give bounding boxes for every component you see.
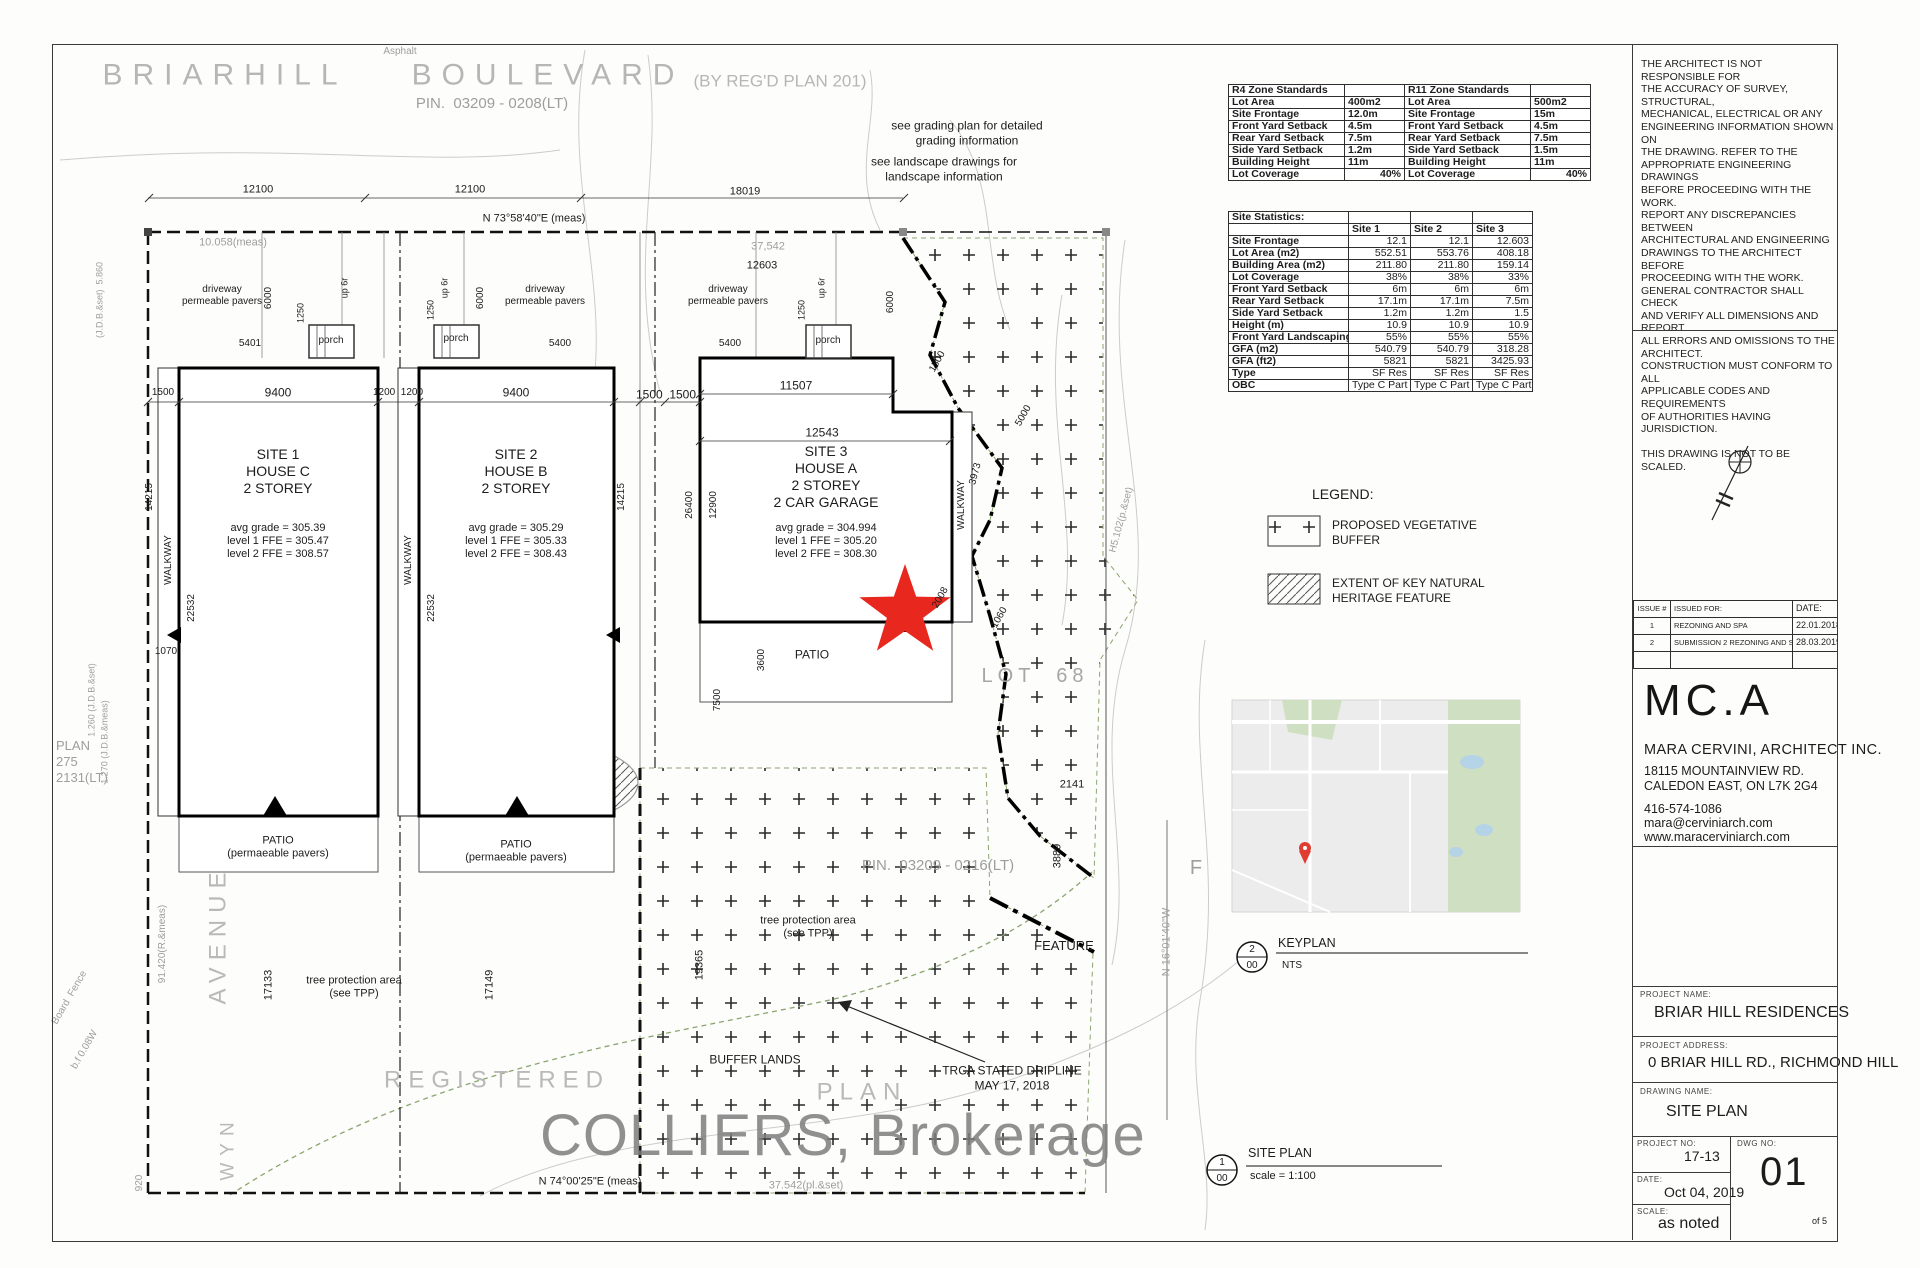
table-cell: SF Res [1411,368,1473,380]
dim-label: 37,542 [751,240,785,253]
bearing-label: N 73°58'40"E (meas) [483,212,586,225]
dim-label: 14215 [144,483,156,511]
lot-label: LOT 68 [982,664,1089,688]
walkway-label: WALKWAY [956,480,968,530]
bearing-label: N 74°00'25"E (meas) [539,1175,642,1188]
tree-protection-note: tree protection area (see TPP) [306,975,401,1002]
drawing-name: SITE PLAN [1666,1103,1748,1121]
column-divider [1632,44,1633,1240]
table-cell: Building Area (m2) [1229,260,1349,272]
table-cell: 33% [1473,272,1533,284]
dim-label: 26400 [684,491,696,519]
table-cell: 1.5m [1531,145,1591,157]
table-cell: R11 Zone Standards [1405,85,1531,97]
table-cell: 6m [1411,284,1473,296]
dim-label: 10.058(meas) [199,236,267,249]
table-cell: Site Frontage [1405,109,1531,121]
table-cell: 6m [1349,284,1411,296]
table-cell: 10.9 [1473,320,1533,332]
table-cell: 3425.93 [1473,356,1533,368]
table-cell: GFA (ft2) [1229,356,1349,368]
divider [1632,330,1838,331]
table-cell: 40% [1345,169,1405,181]
house-1-outline [179,368,378,816]
dim-label: 7500 [712,689,724,711]
legend-heritage-swatch [1268,574,1320,604]
firm-address-line2: CALEDON EAST, ON L7K 2G4 [1644,779,1818,793]
siteplan-detail-number: 1 [1219,1157,1225,1169]
dim-label: 3600 [756,649,768,671]
table-cell [1345,85,1405,97]
trca-note: TRCA STATED DRIPLINE MAY 17, 2018 [942,1063,1082,1092]
table-cell: Building Height [1405,157,1531,169]
driveway-label: driveway permeable pavers [182,284,262,308]
drawing-name-label: DRAWING NAME: [1640,1087,1712,1096]
divider [1632,1136,1838,1137]
issue-header-num: ISSUE # [1634,601,1671,618]
table-cell: 5821 [1411,356,1473,368]
table-cell: 17.1m [1349,296,1411,308]
table-cell: SUBMISSION 2 REZONING AND SPA [1671,635,1793,652]
table-cell: Lot Coverage [1229,272,1349,284]
table-cell: Type C Part 9 [1411,380,1473,392]
site-2-label: SITE 2 HOUSE B 2 STOREY [482,446,551,497]
table-cell: REZONING AND SPA [1671,618,1793,635]
street-name: BOULEVARD [412,58,685,95]
table-cell: 15m [1531,109,1591,121]
driveway-label: driveway permeable pavers [505,284,585,308]
legend-buffer-swatch [1268,516,1320,546]
dim-label: 9400 [503,386,530,401]
porch-label: porch [443,333,468,345]
dim-label: 1250 [426,300,437,320]
table-cell: GFA (m2) [1229,344,1349,356]
table-cell: 10.9 [1349,320,1411,332]
project-address: 0 BRIAR HILL RD., RICHMOND HILL [1648,1054,1898,1071]
table-cell: Rear Yard Setback [1405,133,1531,145]
legend-title: LEGEND: [1312,486,1373,503]
table-cell: Side Yard Setback [1229,308,1349,320]
walkway-label: WALKWAY [163,535,175,585]
table-cell: 408.18 [1473,248,1533,260]
table-cell: Lot Area (m2) [1229,248,1349,260]
table-cell: Site 1 [1349,224,1411,236]
divider [1730,1136,1731,1240]
dim-label: 22532 [426,594,438,622]
project-no-label: PROJECT NO: [1637,1139,1696,1148]
site-1-grades: avg grade = 305.39 level 1 FFE = 305.47 … [227,522,329,561]
disclaimer-text: THE ARCHITECT IS NOT RESPONSIBLE FOR THE… [1641,58,1835,474]
dim-label: 37.542(pl.&set) [769,1179,844,1192]
table-cell: 1.2m [1411,308,1473,320]
table-cell [1411,212,1473,224]
site-statistics-table: Site Statistics:Site 1Site 2Site 3Site F… [1228,211,1532,392]
grading-note: see grading plan for detailed grading in… [891,118,1042,147]
keyplan-label: KEYPLAN [1278,936,1336,951]
table-cell [1793,652,1838,669]
table-cell: 1.2m [1345,145,1405,157]
site-3-grades: avg grade = 304.994 level 1 FFE = 305.20… [775,522,877,561]
table-cell: 1 [1634,618,1671,635]
table-cell: 55% [1473,332,1533,344]
table-cell: SF Res [1349,368,1411,380]
table-cell: Site Frontage [1229,109,1345,121]
porch-label: porch [318,335,343,347]
table-cell: 540.79 [1411,344,1473,356]
landscape-note: see landscape drawings for landscape inf… [871,154,1017,183]
dim-label: 1500 1500 [636,388,696,403]
patio-label: PATIO (permaeable pavers) [465,839,567,866]
site-2-grades: avg grade = 305.29 level 1 FFE = 305.33 … [465,522,567,561]
porches [309,325,851,358]
site-3-label: SITE 3 HOUSE A 2 STOREY 2 CAR GARAGE [773,443,878,511]
survey-note: F [1190,856,1202,880]
divider [1632,1172,1730,1173]
table-cell: 22.01.2018 [1793,618,1838,635]
keyplan-sheet-number: 00 [1246,960,1257,972]
divider [1632,986,1838,987]
table-cell: Rear Yard Setback [1229,296,1349,308]
dim-label: 91.420(R.&meas) [157,905,169,983]
survey-note: (J.D.B.&set) 5.860 [95,262,106,338]
table-cell: SF Res [1473,368,1533,380]
dim-label: 12100 [243,183,274,196]
dim-label: 12900 [708,491,720,519]
table-cell [1671,652,1793,669]
firm-name: MARA CERVINI, ARCHITECT INC. [1644,742,1882,758]
table-cell: Type C Part 9 [1349,380,1411,392]
table-cell: 1.2m [1349,308,1411,320]
stair-label: up 6r [817,278,828,299]
table-cell: Site 3 [1473,224,1533,236]
street-plan-ref: (BY REG'D PLAN 201) [694,72,867,93]
dim-label: 1070 [155,646,177,658]
table-cell: Type [1229,368,1349,380]
table-cell: 400m2 [1345,97,1405,109]
table-cell: 12.1 [1349,236,1411,248]
street-name: BRIARHILL [102,58,347,95]
legend-item-buffer: PROPOSED VEGETATIVE BUFFER [1332,518,1477,548]
table-cell: 4.5m [1345,121,1405,133]
r11-zone-table: R11 Zone StandardsLot Area500m2Site Fron… [1404,84,1590,181]
table-cell: 5821 [1349,356,1411,368]
keyplan-scale: NTS [1282,960,1302,972]
table-cell: Front Yard Landscaping (%) [1229,332,1349,344]
table-cell: Site Frontage [1229,236,1349,248]
dim-label: 6000 [263,287,275,309]
table-cell: OBC [1229,380,1349,392]
table-cell [1349,212,1411,224]
table-cell: Type C Part 9 [1473,380,1533,392]
issue-header-for: ISSUED FOR: [1671,601,1793,618]
table-cell: 318.28 [1473,344,1533,356]
date-label: DATE: [1637,1175,1662,1184]
table-cell: Side Yard Setback [1405,145,1531,157]
table-cell: Site Statistics: [1229,212,1349,224]
table-cell: 7.5m [1345,133,1405,145]
dim-label: 12100 [455,183,486,196]
stair-label: up 6r [440,278,451,299]
issue-header-date: DATE: [1793,601,1838,618]
r4-zone-table: R4 Zone StandardsLot Area400m2Site Front… [1228,84,1404,181]
dim-label: 1250 [296,303,307,323]
table-cell: 7.5m [1531,133,1591,145]
dim-label: 5400 [549,338,571,350]
porch-label: porch [815,335,840,347]
table-cell: 55% [1349,332,1411,344]
firm-website: www.maracerviniarch.com [1644,830,1790,844]
table-cell: 12.0m [1345,109,1405,121]
table-cell: 17.1m [1411,296,1473,308]
brokerage-watermark: COLLIERS, Brokerage [540,1102,1146,1169]
table-cell: 211.80 [1349,260,1411,272]
table-cell: 553.76 [1411,248,1473,260]
table-cell: 55% [1411,332,1473,344]
dim-label: 920 [134,1175,146,1192]
siteplan-sheet-number: 00 [1216,1173,1227,1185]
dim-label: 5400 [719,338,741,350]
issue-table: ISSUE # ISSUED FOR: DATE: 1REZONING AND … [1633,600,1837,669]
dim-label: 17149 [483,970,496,1001]
dim-label: 19365 [693,950,706,981]
table-cell: 10.9 [1411,320,1473,332]
keyplan-detail-number: 2 [1249,944,1255,956]
table-cell: 38% [1349,272,1411,284]
legend-item-heritage: EXTENT OF KEY NATURAL HERITAGE FEATURE [1332,576,1485,606]
table-cell: 4.5m [1531,121,1591,133]
bearing-label: N 16°01'40"W [1160,908,1173,977]
table-cell: 11m [1345,157,1405,169]
table-cell: Lot Coverage [1405,169,1531,181]
firm-phone: 416-574-1086 [1644,802,1722,816]
table-cell: 500m2 [1531,97,1591,109]
patio-label: PATIO [795,648,829,663]
dwg-no: 01 [1760,1150,1809,1195]
asphalt-label: Asphalt [383,46,416,58]
dim-label: 3889 [1051,844,1064,868]
dim-label: 14215 [616,483,628,511]
table-cell: 1.5 [1473,308,1533,320]
table-cell: Lot Area [1229,97,1345,109]
site-plan-sheet: Asphalt BRIARHILL BOULEVARD (BY REG'D PL… [0,0,1920,1268]
table-cell: 11m [1531,157,1591,169]
pin-label: PIN. 03209 - 0208(LT) [416,95,568,113]
table-cell: Site 2 [1411,224,1473,236]
table-cell: 28.03.2019 [1793,635,1838,652]
table-cell: Lot Coverage [1229,169,1345,181]
dwg-no-label: DWG NO: [1737,1139,1777,1148]
table-cell: 552.51 [1349,248,1411,260]
keyplan-map [1232,700,1520,912]
project-name: BRIAR HILL RESIDENCES [1654,1004,1849,1022]
table-cell: R4 Zone Standards [1229,85,1345,97]
tree-protection-note: tree protection area (see TPP) [760,915,855,942]
firm-logo: MC.A [1644,676,1774,726]
table-cell: 2 [1634,635,1671,652]
dim-label: 17133 [262,970,275,1001]
stair-label: up 6r [340,278,351,299]
dim-label: 1250 [797,300,808,320]
survey-note: 1.270 (J.D.B.&meas) [100,700,111,784]
house-2-outline [419,368,614,816]
table-cell: Front Yard Setback [1229,121,1345,133]
table-cell: Front Yard Setback [1405,121,1531,133]
site-1-label: SITE 1 HOUSE C 2 STOREY [244,446,313,497]
dim-label: 5401 [239,338,261,350]
dim-label: 11507 [780,379,812,394]
survey-note: 1.260 (J.D.B.&set) [87,663,98,737]
table-cell: Rear Yard Setback [1229,133,1345,145]
dim-label: 12543 [805,426,838,441]
divider [1632,1204,1730,1205]
table-cell: 7.5m [1473,296,1533,308]
table-cell: 38% [1411,272,1473,284]
table-cell: 211.80 [1411,260,1473,272]
divider [1632,1036,1838,1037]
buffer-lands-label: BUFFER LANDS [709,1053,800,1068]
table-cell: Side Yard Setback [1229,145,1345,157]
drawing-scale: as noted [1658,1215,1719,1233]
divider [1632,1082,1838,1083]
table-cell: 6m [1473,284,1533,296]
project-name-label: PROJECT NAME: [1640,990,1711,999]
firm-email: mara@cerviniarch.com [1644,816,1773,830]
project-address-label: PROJECT ADDRESS: [1640,1041,1728,1050]
driveway-label: driveway permeable pavers [688,284,768,308]
registered-label: REGISTERED [384,1065,610,1094]
dim-label: 1500 [152,387,174,399]
dim-label: 9400 [265,386,292,401]
patio-label: PATIO (permaeable pavers) [227,835,329,862]
dim-label: 12603 [747,259,778,272]
avenue-label: AVENUE [203,866,232,1005]
table-cell: Building Height [1229,157,1345,169]
street-label: WYN [216,1115,239,1180]
walkway-label: WALKWAY [403,535,415,585]
drawing-date: Oct 04, 2019 [1664,1184,1744,1200]
siteplan-label: SITE PLAN [1248,1146,1312,1161]
table-cell [1634,652,1671,669]
table-cell: Lot Area [1405,97,1531,109]
dim-label: 22532 [186,594,198,622]
project-no: 17-13 [1684,1148,1720,1164]
siteplan-scale: scale = 1:100 [1250,1170,1316,1183]
firm-address-line1: 18115 MOUNTAINVIEW RD. [1644,764,1804,778]
dim-label: 6000 [885,291,897,313]
table-cell: 159.14 [1473,260,1533,272]
feature-label: FEATURE [1034,938,1094,954]
table-cell [1531,85,1591,97]
table-cell: Height (m) [1229,320,1349,332]
table-cell: Front Yard Setback [1229,284,1349,296]
table-cell [1473,212,1533,224]
table-cell: 40% [1531,169,1591,181]
sheet-of-label: of 5 [1812,1216,1827,1226]
divider [1632,846,1838,847]
dim-label: 6000 [475,287,487,309]
table-cell: 540.79 [1349,344,1411,356]
dim-label: 18019 [730,185,761,198]
table-cell: 12.603 [1473,236,1533,248]
dim-label: 2141 [1060,778,1084,791]
table-cell [1229,224,1349,236]
pin-label: PIN. 03209 - 0216(LT) [862,857,1014,875]
table-cell: 12.1 [1411,236,1473,248]
dim-label: 1200 1200 [373,387,423,399]
